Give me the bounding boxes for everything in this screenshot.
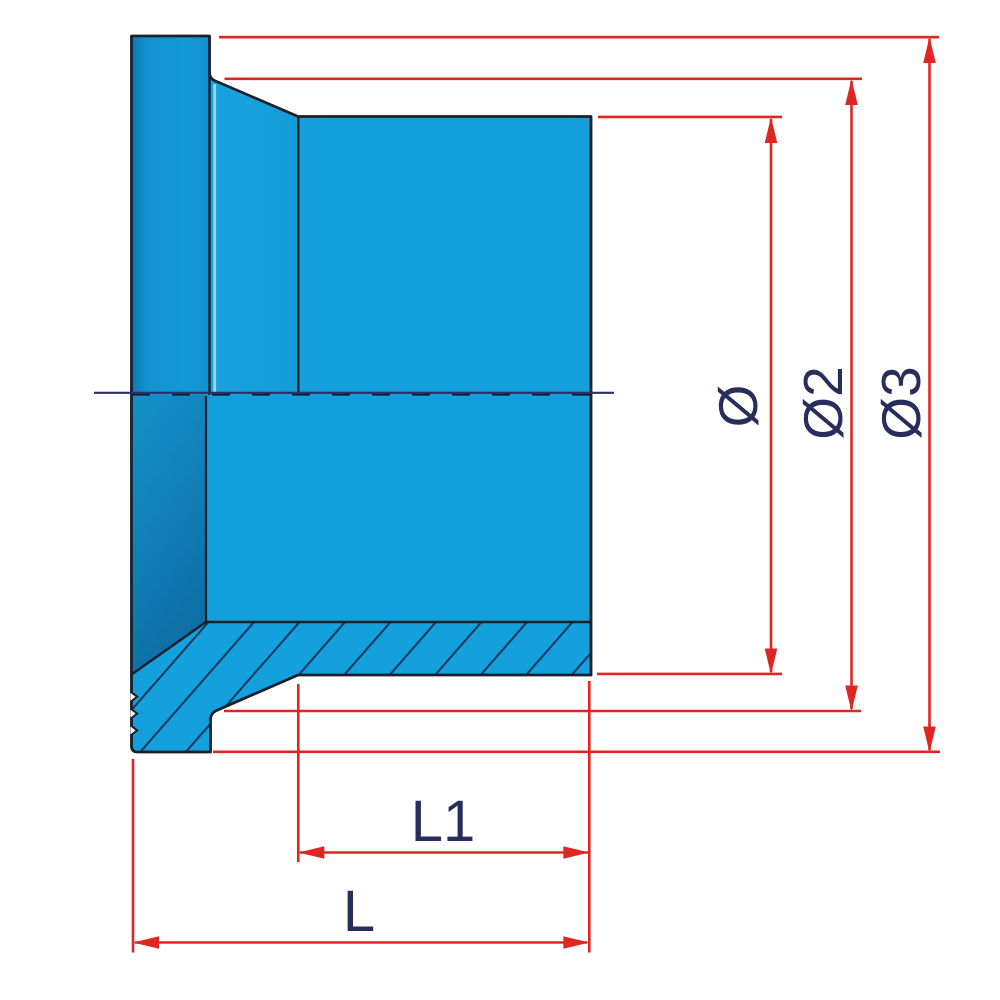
svg-text:L1: L1	[411, 789, 476, 854]
svg-text:Ø2: Ø2	[792, 366, 854, 439]
svg-text:Ø: Ø	[707, 385, 769, 428]
svg-text:Ø3: Ø3	[870, 366, 932, 439]
svg-text:L: L	[343, 879, 375, 944]
